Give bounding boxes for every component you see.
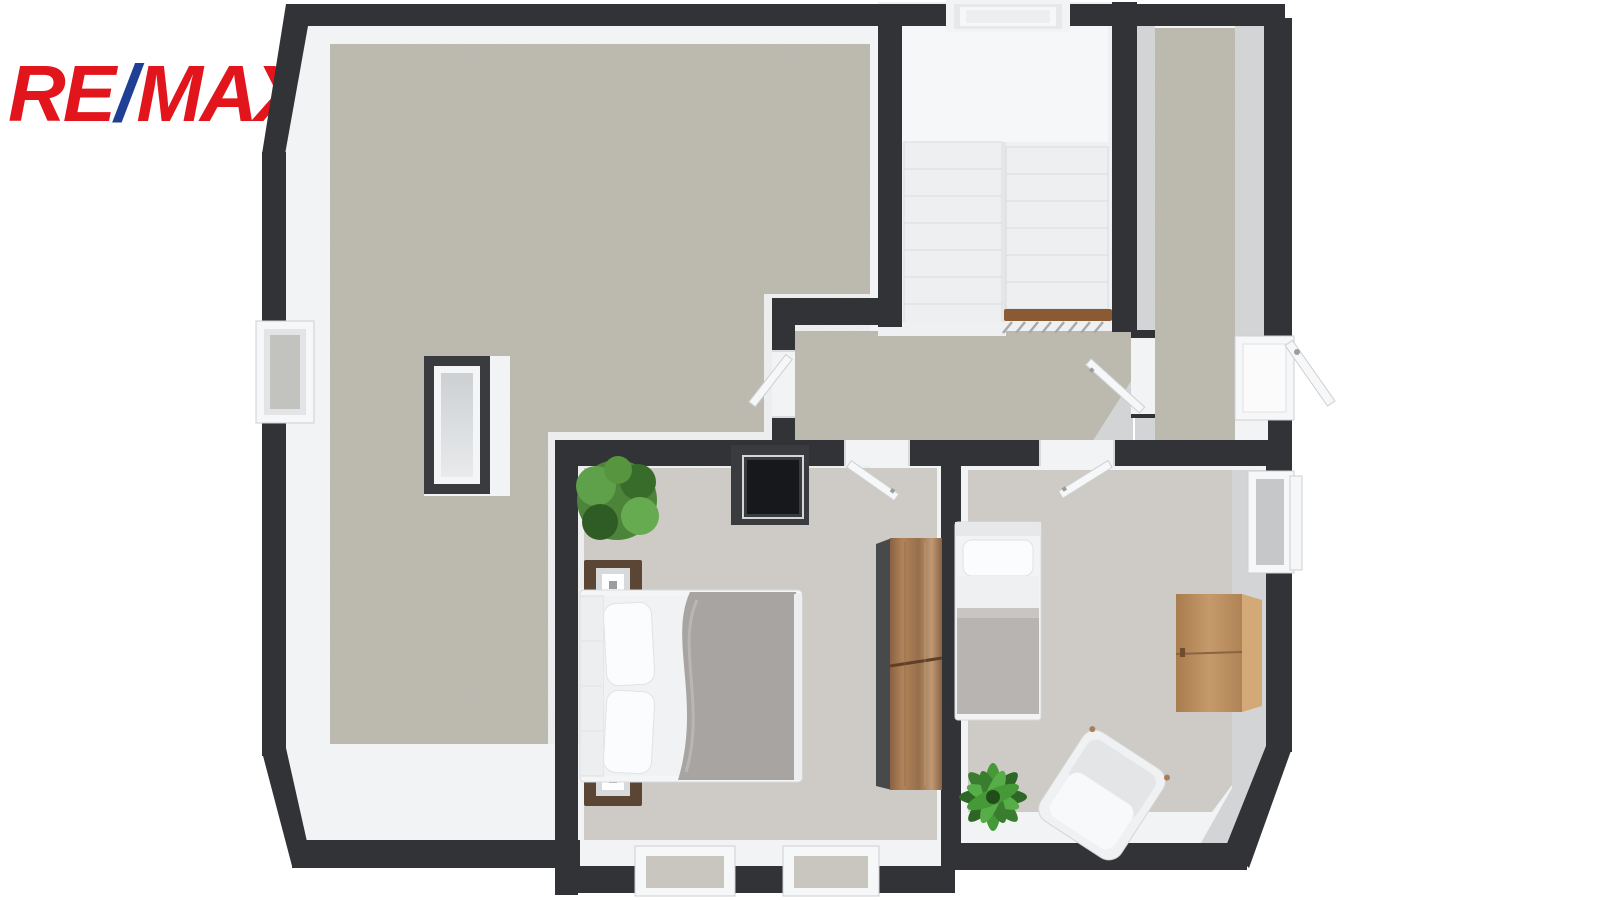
wall-stairs-left (878, 4, 902, 327)
roof-window-left-wall (256, 321, 314, 423)
stair-handrail (1004, 309, 1112, 321)
stair-step (904, 223, 1002, 250)
wall-loft-right (1264, 18, 1292, 344)
stair-step (1006, 282, 1108, 309)
lamp-top (609, 581, 617, 589)
pillow (963, 540, 1033, 576)
loft-end-window (1235, 336, 1335, 420)
foliage (604, 456, 632, 484)
stair-step (1006, 228, 1108, 255)
stair-step (904, 169, 1002, 196)
window-opening (1243, 344, 1286, 412)
loft-floor-texture (1155, 28, 1235, 442)
window-pane (646, 856, 724, 888)
roof-window-bedroom-2 (783, 846, 879, 896)
threshold-bedroom-small (1040, 440, 1114, 466)
stair-step (1006, 147, 1108, 174)
wardrobe-side (876, 538, 892, 790)
dresser (1176, 594, 1262, 712)
stair-step (1006, 255, 1108, 282)
staircase (878, 24, 1112, 336)
stair-flight-right (1006, 147, 1108, 309)
duvet (678, 592, 799, 780)
wall-bedroom-large-left (555, 440, 578, 895)
roof-window-bedroom-1 (635, 846, 735, 896)
wall-left-lower (262, 416, 286, 756)
stair-landing (902, 24, 1108, 142)
window-pane (270, 335, 300, 409)
potted-plant-2 (959, 763, 1027, 831)
pillow (603, 602, 655, 686)
headboard (955, 522, 1041, 536)
stair-step (904, 250, 1002, 277)
dresser-top-face (1242, 594, 1262, 712)
pillow (603, 690, 655, 774)
skylight-pane (966, 10, 1050, 23)
foliage (621, 497, 659, 535)
skylight-shaft-box (424, 356, 510, 496)
bed-frame-edge (794, 594, 802, 780)
window-pane (1256, 479, 1284, 565)
stair-step (1006, 201, 1108, 228)
stair-step (1006, 174, 1108, 201)
wall-bedroom-large-bottom (555, 866, 955, 893)
stair-divider (1002, 142, 1006, 332)
dresser-handle (1180, 648, 1185, 657)
stair-step (904, 142, 1002, 169)
shaft-glass (441, 373, 473, 477)
potted-plant-1 (576, 456, 659, 540)
bed-sheet (957, 576, 1039, 612)
floor-plan-svg (0, 0, 1600, 900)
wardrobe (876, 538, 942, 790)
chimney-shaft (731, 445, 809, 525)
chimney-flue (747, 460, 799, 514)
side-window-bedroom-small (1248, 471, 1302, 573)
casement-handle (1294, 349, 1300, 355)
double-bed (580, 590, 802, 782)
wall-left-upper (262, 152, 286, 328)
wall-attic-bottom (292, 840, 580, 868)
stair-step (904, 277, 1002, 304)
threshold-bedroom-large (845, 440, 909, 466)
wall-loft-right-corner (1268, 414, 1292, 464)
blanket-fold (957, 608, 1039, 618)
skylight-over-stairs (946, 0, 1070, 32)
hall-floor-texture (795, 331, 1133, 442)
stair-flight-left (904, 142, 1002, 331)
foliage (582, 504, 618, 540)
stair-step (904, 196, 1002, 223)
plant-center (986, 790, 1000, 804)
loft-right-band (1235, 25, 1266, 345)
window-open-panel (1290, 476, 1302, 570)
floor-plan-page: RE/MAX (0, 0, 1600, 900)
single-bed (955, 522, 1041, 720)
wall-stairs-loft (1112, 2, 1137, 332)
window-pane (794, 856, 868, 888)
blanket (957, 608, 1039, 714)
wall-bedrooms-top (555, 440, 1292, 466)
